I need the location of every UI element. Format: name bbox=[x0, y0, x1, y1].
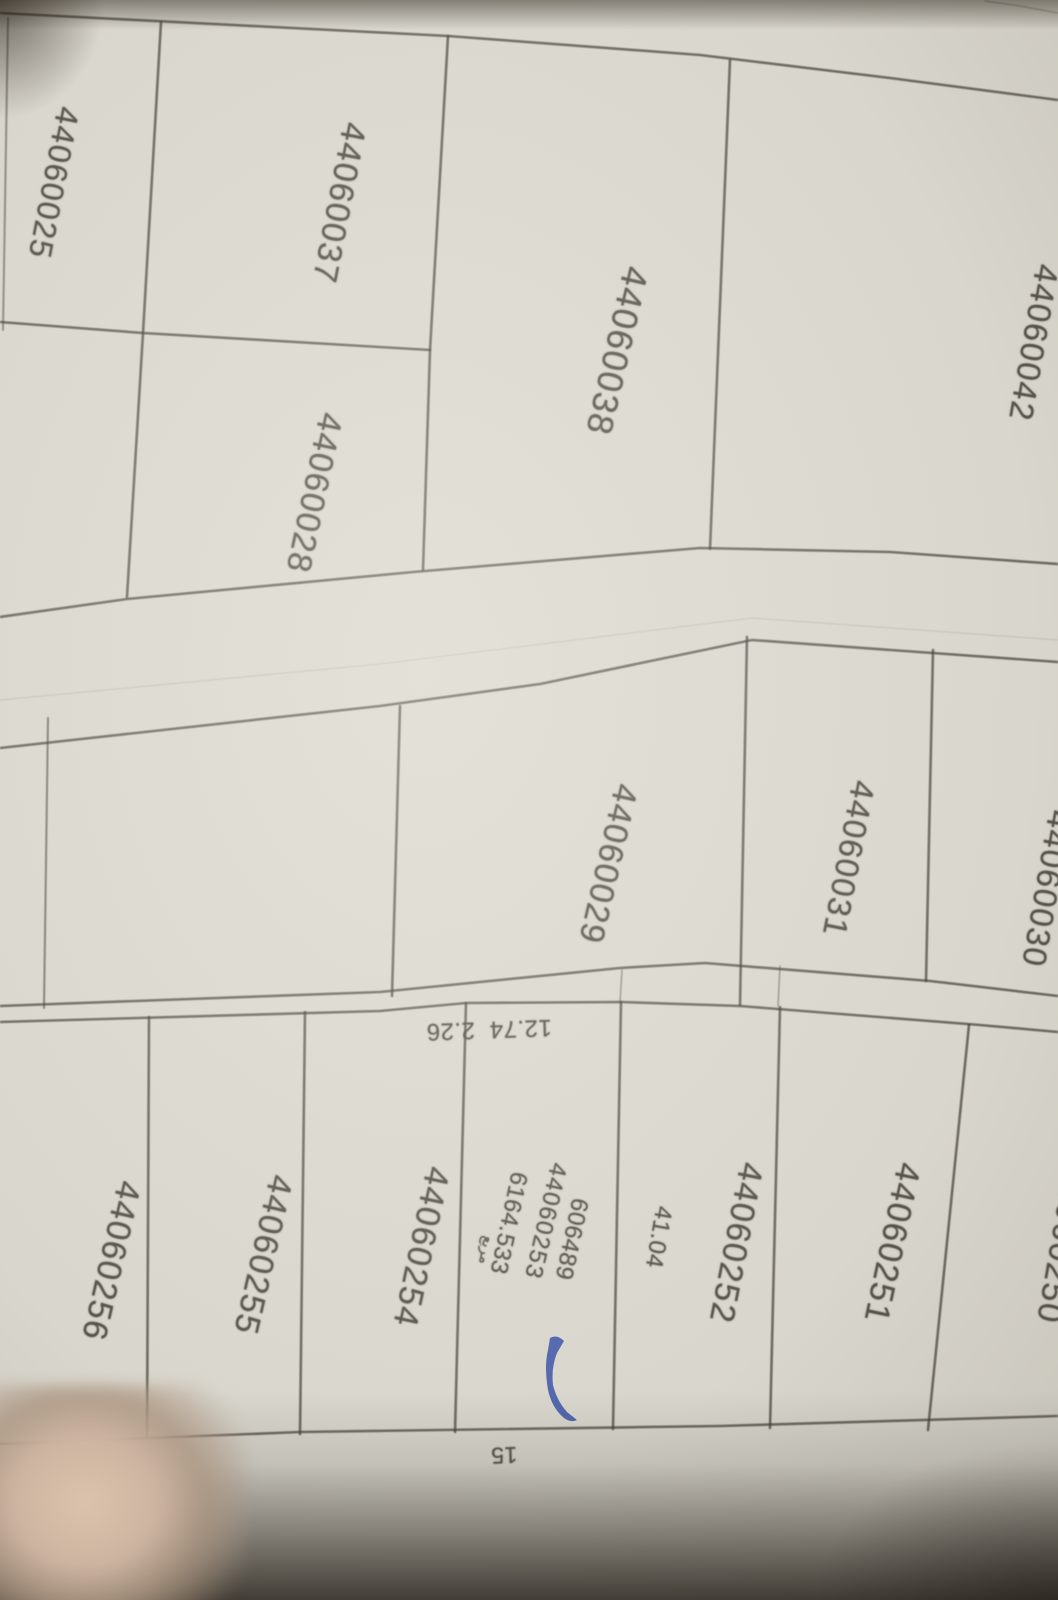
blue-pen-mark bbox=[0, 0, 1058, 1600]
blue-pen-mark bbox=[546, 1337, 577, 1422]
plan-photo: 4406002544060037440600384406002844060042… bbox=[0, 0, 1058, 1600]
